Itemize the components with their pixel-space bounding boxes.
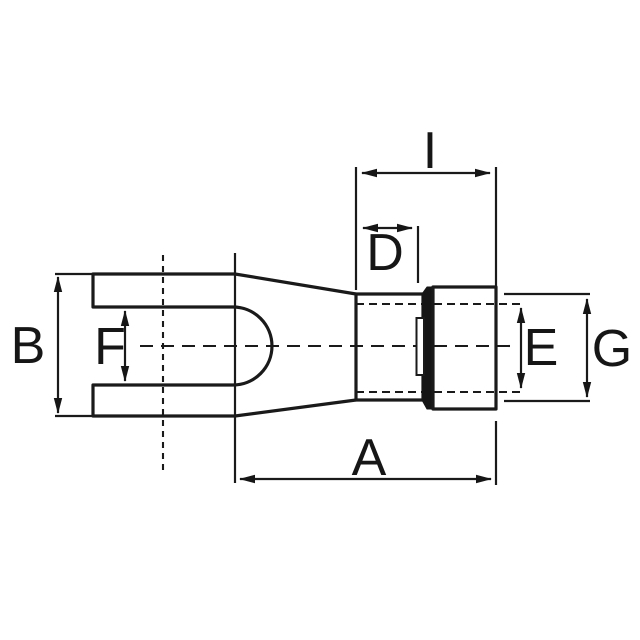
dimension-label-a: A	[352, 429, 387, 487]
dimension-label-g: G	[592, 320, 632, 378]
barrel-seam-slot	[417, 318, 425, 375]
dimension-lines	[58, 173, 587, 479]
technical-drawing-page: B F A D I E G	[0, 0, 640, 640]
fork-terminal-dimension-diagram: B F A D I E G	[0, 0, 640, 640]
extension-lines	[55, 167, 590, 485]
dimension-label-e: E	[524, 319, 559, 377]
barrel-right-sleeve-outline	[433, 287, 496, 409]
barrel-left-sleeve-outline	[356, 294, 423, 400]
dimension-labels: B F A D I E G	[11, 122, 633, 487]
dimension-label-f: F	[94, 318, 126, 376]
dimension-label-i: I	[423, 122, 437, 180]
dimension-label-b: B	[11, 317, 46, 375]
dimension-label-d: D	[366, 224, 404, 282]
